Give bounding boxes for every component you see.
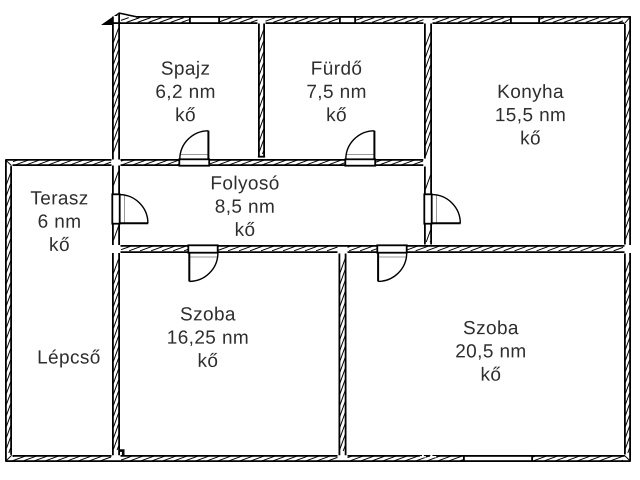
svg-text:7,5 nm: 7,5 nm bbox=[306, 82, 367, 103]
svg-text:6 nm: 6 nm bbox=[38, 212, 82, 233]
svg-text:Terasz: Terasz bbox=[30, 188, 88, 209]
svg-text:16,25 nm: 16,25 nm bbox=[167, 328, 249, 349]
svg-text:kő: kő bbox=[520, 128, 541, 149]
svg-text:kő: kő bbox=[197, 351, 218, 372]
svg-text:2: 2 bbox=[430, 445, 437, 460]
svg-text:8,5 nm: 8,5 nm bbox=[215, 197, 276, 218]
svg-text:kő: kő bbox=[175, 105, 196, 126]
svg-text:Folyosó: Folyosó bbox=[210, 173, 279, 194]
svg-text:Spajz: Spajz bbox=[161, 59, 211, 80]
svg-text:Lépcső: Lépcső bbox=[37, 347, 101, 368]
svg-text:1: 1 bbox=[419, 445, 426, 460]
svg-text:kő: kő bbox=[480, 365, 501, 386]
svg-text:6,2 nm: 6,2 nm bbox=[155, 82, 216, 103]
svg-text:20,5 nm: 20,5 nm bbox=[455, 341, 526, 362]
svg-text:kő: kő bbox=[326, 105, 347, 126]
svg-text:Szoba: Szoba bbox=[463, 318, 519, 339]
svg-text:kő: kő bbox=[49, 235, 70, 256]
svg-text:Szoba: Szoba bbox=[180, 304, 236, 325]
svg-text:Konyha: Konyha bbox=[497, 82, 564, 103]
svg-text:kő: kő bbox=[235, 220, 256, 241]
svg-text:Fürdő: Fürdő bbox=[311, 59, 363, 80]
svg-text:15,5 nm: 15,5 nm bbox=[495, 105, 566, 126]
